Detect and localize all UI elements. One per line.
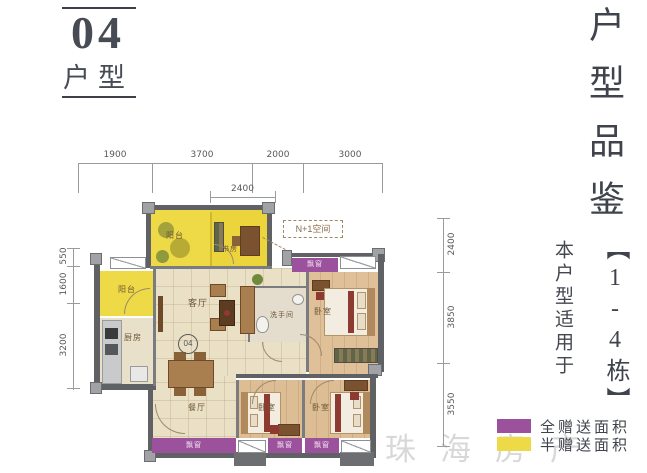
pillow-icon — [353, 414, 361, 427]
dim-tick — [382, 163, 383, 193]
column — [142, 202, 155, 214]
armchair-icon — [210, 284, 226, 297]
fridge-icon — [130, 366, 148, 382]
bed-headboard-icon — [367, 288, 375, 336]
desk-icon — [344, 380, 368, 391]
column — [262, 202, 275, 214]
floorplan-page: 04 户型 户型品鉴 【1-4栋】 本户型适用于 珠海房产 全赠送面积 半赠送面… — [0, 0, 647, 473]
dim-top-3: 2000 — [253, 150, 303, 160]
wall — [146, 205, 151, 268]
washbasin-icon — [292, 294, 304, 305]
wall — [146, 205, 272, 210]
study-divider — [210, 212, 212, 266]
dim-left-2: 1600 — [59, 264, 69, 304]
pillow-icon — [250, 414, 258, 427]
tv-stand-icon — [158, 296, 163, 332]
dim-tick — [437, 272, 450, 273]
plant-icon — [252, 274, 263, 285]
wardrobe-icon — [334, 348, 378, 363]
room-label-dining: 餐厅 — [188, 402, 206, 413]
bay-window-strip: 飘窗 — [292, 258, 338, 272]
plant-icon — [156, 250, 169, 263]
wall — [236, 374, 378, 378]
wall — [267, 205, 272, 268]
dim-right-1: 2400 — [447, 224, 457, 264]
column — [234, 452, 266, 466]
room-label-master: 卧室 — [314, 306, 332, 317]
wall — [150, 266, 272, 269]
wall — [94, 256, 100, 390]
bed-headboard-icon — [363, 392, 370, 434]
dim-line-top2 — [210, 197, 275, 198]
bed-headboard-icon — [241, 392, 248, 434]
chair-icon — [174, 388, 186, 396]
wall — [302, 380, 305, 438]
wall — [248, 286, 306, 288]
dim-top-1: 1900 — [90, 150, 140, 160]
bay-window-strip: 飘窗 — [268, 438, 302, 453]
room-label-bedroom-b: 卧室 — [312, 402, 330, 413]
wall — [236, 380, 239, 438]
sink-icon — [105, 344, 118, 355]
dim-tick — [437, 363, 450, 364]
dim-top2: 2400 — [210, 184, 275, 194]
header-rule-bottom — [62, 96, 136, 98]
toilet-icon — [256, 316, 269, 333]
window-icon — [238, 440, 266, 453]
room-label-balcony-top: 阳台 — [166, 230, 184, 241]
pillow-icon — [357, 292, 366, 309]
dim-left-3: 3200 — [59, 325, 69, 365]
room-label-living: 客厅 — [188, 296, 208, 309]
legend-swatch-full — [497, 419, 531, 433]
room-label-bedroom-a: 卧室 — [258, 402, 276, 413]
side-building-range: 【1-4栋】 — [598, 236, 633, 416]
dim-tick — [303, 163, 304, 193]
dim-tick — [67, 388, 80, 389]
column — [90, 253, 102, 265]
decor-icon — [224, 310, 230, 316]
legend-label-half: 半赠送面积 — [540, 434, 630, 455]
wall — [153, 268, 156, 386]
dim-line-left — [73, 248, 74, 390]
chair-icon — [194, 352, 206, 360]
pillow-icon — [357, 313, 366, 330]
unit-type-label: 户型 — [56, 56, 140, 95]
dim-line-top — [78, 163, 382, 164]
dining-table-icon — [168, 360, 214, 388]
room-label-kitchen: 厨房 — [124, 332, 142, 343]
sofa-icon — [240, 286, 255, 334]
window-icon — [340, 256, 376, 269]
chair-icon — [350, 392, 359, 400]
unit-number: 04 — [56, 6, 140, 59]
room-label-bath: 洗手间 — [270, 310, 294, 320]
dim-tick — [437, 218, 450, 219]
legend-swatch-half — [497, 437, 531, 451]
side-applies-note: 本户型适用于 — [549, 240, 576, 378]
dim-right-2: 3850 — [447, 297, 457, 337]
side-title: 户型品鉴 — [578, 6, 630, 238]
dim-top-4: 3000 — [318, 150, 382, 160]
bay-window-strip: 飘窗 — [152, 438, 236, 453]
wall — [378, 254, 384, 372]
chair-icon — [194, 388, 206, 396]
unit-circle-badge: 04 — [178, 334, 198, 354]
desk-icon — [278, 424, 300, 436]
chair-icon — [270, 425, 279, 434]
bed-runner-icon — [335, 394, 341, 432]
room-label-balcony-left: 阳台 — [118, 284, 136, 295]
dim-right-3: 3550 — [447, 384, 457, 424]
wall — [306, 272, 309, 372]
dim-top-2: 3700 — [177, 150, 227, 160]
dim-tick — [152, 163, 153, 193]
wall — [94, 384, 156, 390]
desk-icon — [240, 226, 260, 256]
dim-tick — [78, 163, 79, 193]
room-label-study: 书房 — [222, 244, 238, 254]
column — [282, 250, 292, 266]
window-icon — [341, 440, 371, 453]
plant-icon — [170, 238, 190, 258]
bed-runner-icon — [348, 291, 354, 333]
dim-line-right — [443, 218, 444, 446]
stove-icon — [105, 328, 118, 339]
column — [90, 382, 102, 394]
dim-tick — [275, 191, 276, 203]
column — [340, 452, 374, 466]
window-icon — [110, 257, 146, 269]
bay-window-strip: 飘窗 — [305, 438, 339, 453]
nplus1-callout: N+1空间 — [283, 220, 343, 238]
